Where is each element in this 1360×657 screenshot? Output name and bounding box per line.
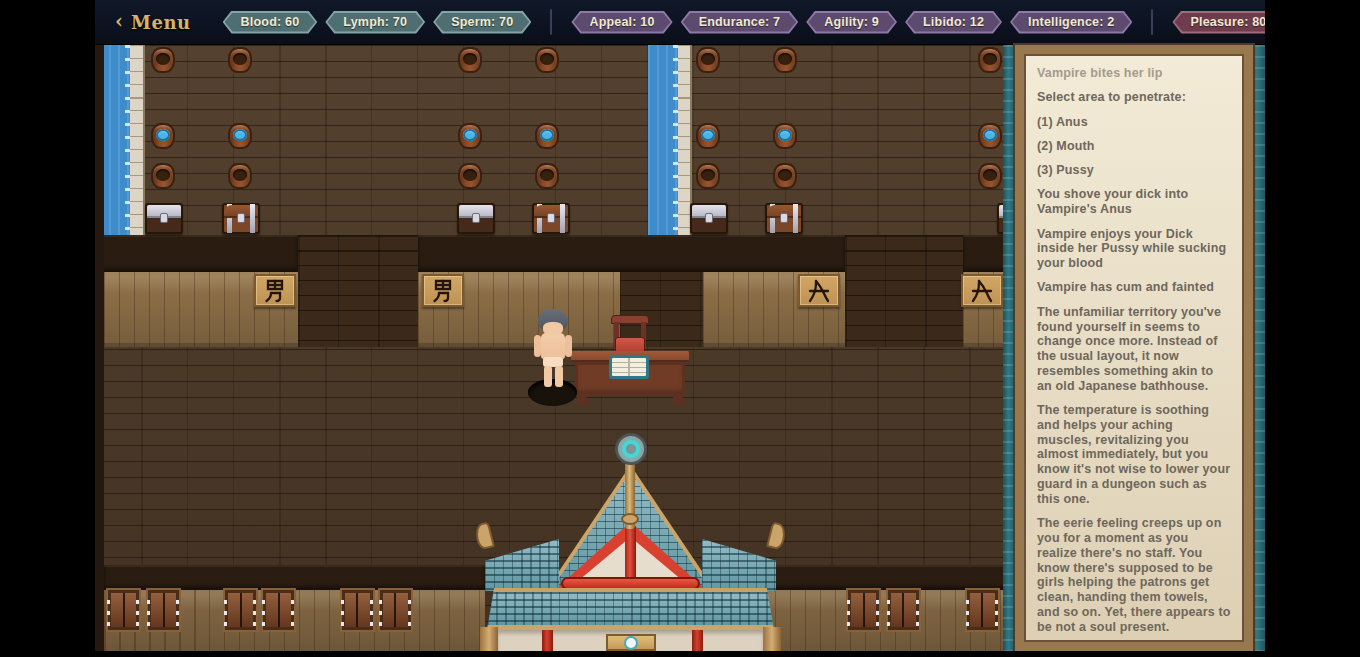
water-barrel [151,123,175,149]
event-log-panel: Vampire bites her lipSelect area to pene… [1015,45,1253,651]
treasure-chest[interactable] [532,203,570,234]
barrel [978,47,1002,73]
letterbox-bottom [95,651,1265,657]
mens-room-sign [422,274,464,307]
spire-glow [622,440,640,458]
treasure-chest[interactable] [690,203,728,234]
stat-badge-label: Sperm: 70 [451,15,513,29]
barrel [696,47,720,73]
stat-badge-label: Intelligence: 2 [1028,15,1114,29]
stat-badge-inner: Lymph: 70 [327,13,423,32]
log-entry: (2) Mouth [1037,139,1231,154]
entrance-pillar [542,630,553,651]
treasure-chest[interactable] [222,203,260,234]
character-leg [544,366,552,387]
book-pages [612,358,646,376]
log-entry: Vampire has cum and fainted [1037,280,1231,295]
locker-shutter[interactable] [967,590,998,630]
locker-shutter[interactable] [263,590,294,630]
stat-badge-inner: Blood: 60 [225,13,316,32]
barrel [696,163,720,189]
stat-badge-inner: Endurance: 7 [683,13,797,32]
stat-badge: Intelligence: 2 [1010,11,1132,34]
stat-badge-label: Lymph: 70 [343,15,407,29]
barrel [151,163,175,189]
stat-badge: Sperm: 70 [433,11,531,34]
barrel [228,47,252,73]
chest-latch [237,213,245,223]
treasure-chest[interactable] [145,203,183,234]
water-barrel [696,123,720,149]
stat-badge: Appeal: 10 [571,11,672,34]
stat-badge-label: Pleasure: 80 [1190,15,1266,29]
stat-badge: Lymph: 70 [325,11,425,34]
letterbox-left [0,0,95,657]
locker-shutter[interactable] [225,590,256,630]
stat-badge: Blood: 60 [223,11,318,34]
womens-room-sign [961,274,1003,307]
stat-badge-inner: Agility: 9 [808,13,895,32]
map-edge-left [95,45,104,657]
chest-latch [705,213,713,223]
chest-latch [780,213,788,223]
character-leg [555,366,563,387]
log-entry: You shove your dick into Vampire's Anus [1037,187,1231,217]
water-barrel [978,123,1002,149]
spire-ring-ornament [615,433,647,465]
character-torso [541,333,565,359]
log-entry: Vampire enjoys your Dick inside her Puss… [1037,227,1231,271]
water-barrel [458,123,482,149]
top-bar: ‹ Menu Blood: 60Lymph: 70Sperm: 70Appeal… [95,0,1265,45]
character-arm [534,335,541,357]
barrel [151,47,175,73]
chest-latch [160,213,168,223]
water-barrel [228,123,252,149]
desk-leg [577,396,587,405]
stat-badge-label: Appeal: 10 [589,15,654,29]
chest-latch [547,213,555,223]
treasure-chest[interactable] [765,203,803,234]
chest-latch [472,213,480,223]
stat-badge-label: Blood: 60 [241,15,300,29]
log-entry: The unfamiliar territory you've found yo… [1037,305,1231,394]
locker-shutter[interactable] [848,590,879,630]
stat-badge-label: Endurance: 7 [699,15,781,29]
barrel [228,163,252,189]
entrance-sign[interactable] [606,634,656,651]
log-entry: Select area to penetrate: [1037,90,1231,105]
log-entry: (3) Pussy [1037,163,1231,178]
stat-badge-inner: Libido: 12 [907,13,1000,32]
barrel [535,47,559,73]
water-barrel [535,123,559,149]
stat-badge-inner: Appeal: 10 [573,13,670,32]
mens-room-sign [254,274,296,307]
roof-center-post [625,525,636,582]
barrel [773,163,797,189]
stat-badge-inner: Intelligence: 2 [1012,13,1130,32]
player-character[interactable] [531,309,575,389]
stat-badge: Endurance: 7 [681,11,799,34]
letterbox-right [1265,0,1360,657]
top-bar-divider [550,9,552,35]
locker-shutter[interactable] [108,590,139,630]
locker-shutter[interactable] [888,590,919,630]
stat-badges: Blood: 60Lymph: 70Sperm: 70Appeal: 10End… [223,9,1285,35]
stat-badge-label: Libido: 12 [923,15,984,29]
water-barrel [773,123,797,149]
log-entry: The eerie feeling creeps up on you for a… [1037,516,1231,634]
entrance-post-right [763,627,781,651]
stat-badge: Libido: 12 [905,11,1002,34]
stat-badge-inner: Sperm: 70 [435,13,529,32]
log-entry: Vampire bites her lip [1037,66,1231,81]
barrel [773,47,797,73]
spire-knob [621,513,639,525]
open-book[interactable] [609,355,649,379]
back-chevron-icon: ‹ [115,11,123,31]
log-entry: (1) Anus [1037,115,1231,130]
barrel [458,47,482,73]
menu-button[interactable]: ‹ Menu [115,12,191,33]
barrel [978,163,1002,189]
event-log-scroll[interactable]: Vampire bites her lipSelect area to pene… [1024,54,1244,642]
barrel [535,163,559,189]
menu-label: Menu [131,12,191,33]
stat-badge-label: Agility: 9 [824,15,879,29]
stat-badge: Agility: 9 [806,11,897,34]
locker-shutter[interactable] [148,590,179,630]
entrance-post-left [480,627,498,651]
app-window: ‹ Menu Blood: 60Lymph: 70Sperm: 70Appeal… [0,0,1360,657]
treasure-chest[interactable] [457,203,495,234]
womens-room-sign [798,274,840,307]
locker-shutter[interactable] [342,590,373,630]
map-edge-water [1251,45,1265,657]
entrance-pillar [692,630,703,651]
log-entry: The temperature is soothing and helps yo… [1037,403,1231,507]
barrel [458,163,482,189]
character-face [543,322,563,335]
roof-eave [487,588,774,630]
character-arm [565,335,572,357]
desk-leg [673,396,683,405]
locker-shutter[interactable] [380,590,411,630]
top-bar-divider [1151,9,1153,35]
